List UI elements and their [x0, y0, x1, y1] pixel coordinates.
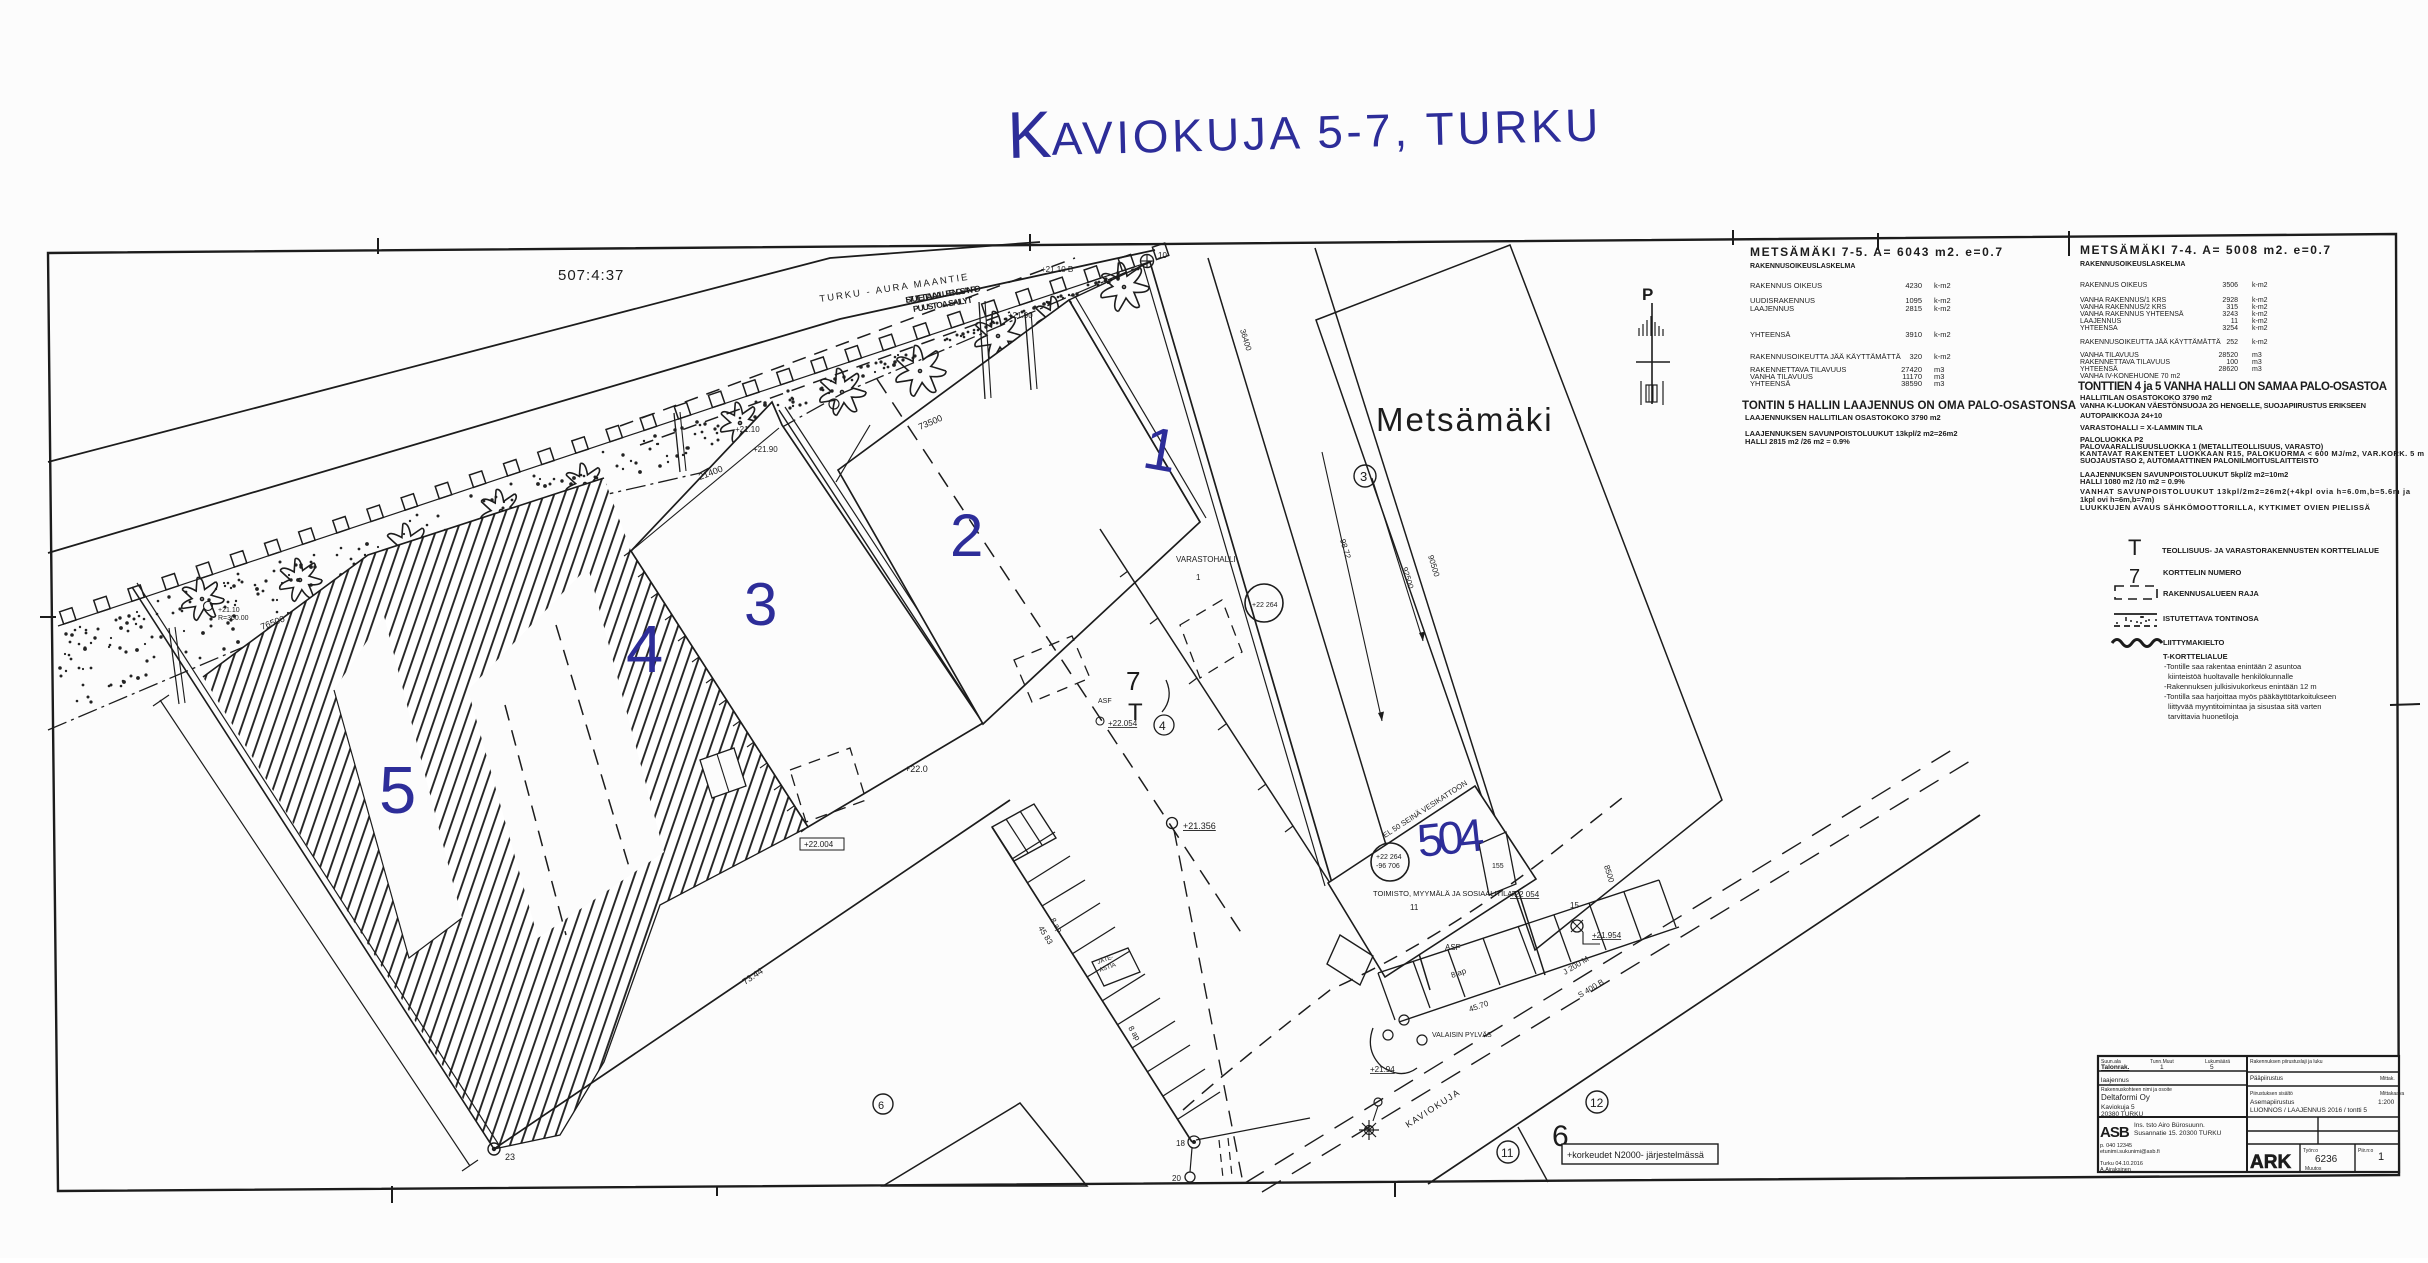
svg-text:m3: m3 [2252, 366, 2262, 373]
svg-text:k-m2: k-m2 [2252, 318, 2268, 325]
svg-text:Muutos: Muutos [2305, 1166, 2322, 1172]
svg-text:LAAJENNUS: LAAJENNUS [1750, 304, 1794, 313]
svg-text:k-m2: k-m2 [2252, 282, 2268, 289]
svg-text:3243: 3243 [2222, 311, 2238, 318]
svg-text:+21.90: +21.90 [753, 445, 778, 454]
svg-text:laajennus: laajennus [2101, 1077, 2130, 1084]
svg-text:+21.356: +21.356 [1183, 821, 1216, 831]
svg-text:5: 5 [379, 753, 416, 828]
svg-text:VARASTOHALLI: VARASTOHALLI [1176, 555, 1236, 564]
svg-text:11: 11 [2231, 318, 2238, 325]
svg-text:HALLI 2815 m2 /26 m2 = 0.9%: HALLI 2815 m2 /26 m2 = 0.9% [1745, 437, 1850, 446]
svg-text:P: P [1642, 285, 1653, 304]
svg-text:12: 12 [1590, 1096, 1604, 1110]
svg-text:tarvittavia huonetiloja: tarvittavia huonetiloja [2168, 712, 2239, 721]
svg-text:k-m2: k-m2 [1934, 330, 1951, 339]
svg-text:LAAJENNUS: LAAJENNUS [2080, 318, 2122, 325]
svg-text:5: 5 [2210, 1064, 2214, 1071]
svg-text:1: 1 [1196, 573, 1201, 582]
svg-text:HALLI 1080 m2 /10 m2 = 0.9%: HALLI 1080 m2 /10 m2 = 0.9% [2080, 477, 2185, 486]
svg-text:RAKENNUSALUEEN RAJA: RAKENNUSALUEEN RAJA [2163, 589, 2259, 598]
svg-text:2815: 2815 [1905, 304, 1922, 313]
svg-text:k-m2: k-m2 [2252, 304, 2268, 311]
svg-text:Susannatie 15. 20300 TURKU: Susannatie 15. 20300 TURKU [2134, 1130, 2222, 1137]
svg-text:1: 1 [2160, 1064, 2164, 1071]
svg-text:LUONNOS / LAAJENNUS 2016 / ton: LUONNOS / LAAJENNUS 2016 / tontti 5 [2250, 1107, 2367, 1114]
svg-text:Mittak.: Mittak. [2380, 1076, 2395, 1082]
svg-text:TONTTIEN 4 ja 5 VANHA HALLI ON: TONTTIEN 4 ja 5 VANHA HALLI ON SAMAA PAL… [2078, 381, 2387, 393]
svg-text:VANHA RAKENNUS/2 KRS: VANHA RAKENNUS/2 KRS [2080, 304, 2167, 311]
svg-text:T-KORTTELIALUE: T-KORTTELIALUE [2163, 652, 2228, 661]
svg-text:SUOJAUSTASO 2, AUTOMAATTINEN P: SUOJAUSTASO 2, AUTOMAATTINEN PALONILMOIT… [2080, 456, 2319, 465]
svg-text:LUUKKUJEN AVAUS SÄHKÖMOOTTORIL: LUUKKUJEN AVAUS SÄHKÖMOOTTORILLA, KYTKIM… [2080, 503, 2371, 512]
svg-text:100: 100 [2226, 359, 2238, 366]
svg-text:LAAJENNUKSEN HALLITILAN OSASTO: LAAJENNUKSEN HALLITILAN OSASTOKOKO 3790 … [1745, 413, 1941, 422]
svg-text:etunimi.sukunimi@asb.fi: etunimi.sukunimi@asb.fi [2100, 1149, 2160, 1155]
svg-text:320: 320 [1909, 352, 1922, 361]
svg-text:1: 1 [2378, 1151, 2384, 1163]
svg-text:Asemapiirustus: Asemapiirustus [2250, 1099, 2295, 1106]
svg-text:28520: 28520 [2219, 352, 2239, 359]
svg-text:k-m2: k-m2 [2252, 339, 2268, 346]
svg-text:3: 3 [744, 571, 777, 638]
svg-text:Metsämäki: Metsämäki [1376, 401, 1554, 438]
svg-text:KORTTELIN NUMERO: KORTTELIN NUMERO [2163, 568, 2241, 577]
svg-text:2928: 2928 [2222, 297, 2238, 304]
svg-text:315: 315 [2226, 304, 2238, 311]
svg-text:+21.10 B: +21.10 B [1041, 265, 1073, 274]
svg-text:+21.10: +21.10 [218, 607, 240, 614]
svg-text:ASB: ASB [2100, 1124, 2130, 1141]
svg-text:RAKENNUSOIKEUTTA JÄÄ KÄYTTÄMÄT: RAKENNUSOIKEUTTA JÄÄ KÄYTTÄMÄTTÄ [1750, 352, 1901, 361]
svg-text:YHTEENSÄ: YHTEENSÄ [1750, 330, 1790, 339]
svg-text:4: 4 [1159, 719, 1166, 733]
svg-text:+21.10: +21.10 [735, 425, 760, 434]
svg-text:Rakennuksen piirustuslaji ja l: Rakennuksen piirustuslaji ja luku [2250, 1059, 2323, 1065]
svg-text:RAKENNUSOIKEUSLASKELMA: RAKENNUSOIKEUSLASKELMA [1750, 263, 1855, 270]
svg-text:m3: m3 [2252, 359, 2262, 366]
svg-text:ISTUTETTAVA TONTINOSA: ISTUTETTAVA TONTINOSA [2163, 614, 2259, 623]
svg-text:RAKENNUSOIKEUSLASKELMA: RAKENNUSOIKEUSLASKELMA [2080, 261, 2185, 268]
svg-text:6236: 6236 [2315, 1154, 2338, 1165]
svg-text:6: 6 [878, 1100, 884, 1112]
svg-text:11: 11 [1410, 903, 1419, 912]
svg-text:+21.954: +21.954 [1592, 931, 1622, 940]
svg-text:Deltaformi Oy: Deltaformi Oy [2101, 1093, 2150, 1102]
svg-text:RAKENNUS OIKEUS: RAKENNUS OIKEUS [1750, 281, 1822, 290]
svg-text:Mittakaava: Mittakaava [2380, 1091, 2404, 1097]
svg-text:LIITTYMAKIELTO: LIITTYMAKIELTO [2163, 638, 2225, 647]
svg-text:4: 4 [626, 612, 663, 687]
svg-text:15: 15 [1570, 901, 1579, 910]
svg-text:3254: 3254 [2222, 325, 2238, 332]
svg-text:504: 504 [1415, 808, 1486, 867]
svg-text:TEOLLISUUS- JA VARASTORAKENNUS: TEOLLISUUS- JA VARASTORAKENNUSTEN KORTTE… [2162, 546, 2379, 555]
svg-text:20: 20 [1172, 1174, 1181, 1183]
svg-text:+22 264: +22 264 [1376, 854, 1402, 861]
svg-text:YHTEENSA: YHTEENSA [2080, 325, 2118, 332]
svg-text:YHTEENSÄ: YHTEENSÄ [2080, 365, 2118, 373]
svg-text:k-m2: k-m2 [2252, 297, 2268, 304]
svg-text:VANHA K-LUOKAN VÄESTÖNSUOJA 2G: VANHA K-LUOKAN VÄESTÖNSUOJA 2G HENGELLE,… [2080, 401, 2366, 410]
svg-text:+22.004: +22.004 [804, 840, 834, 849]
svg-text:VANHA TILAVUUS: VANHA TILAVUUS [2080, 352, 2139, 359]
svg-text:155: 155 [1492, 863, 1504, 870]
svg-text:Talonrak.: Talonrak. [2101, 1064, 2130, 1071]
svg-text:+22 054: +22 054 [1510, 890, 1540, 899]
svg-text:YHTEENSÄ: YHTEENSÄ [1750, 379, 1790, 388]
svg-text:507:4:37: 507:4:37 [558, 267, 624, 284]
svg-text:T: T [2128, 535, 2141, 560]
svg-text:38590: 38590 [1901, 379, 1922, 388]
svg-text:A.Airaksinen: A.Airaksinen [2100, 1167, 2131, 1173]
svg-text:VANHA RAKENNUS YHTEENSÄ: VANHA RAKENNUS YHTEENSÄ [2080, 310, 2184, 318]
svg-text:liittyvää myyntitoimintaa ja s: liittyvää myyntitoimintaa ja sisustaa si… [2168, 702, 2321, 711]
svg-text:Pääpiirustus: Pääpiirustus [2250, 1076, 2283, 1082]
svg-text:k-m2: k-m2 [1934, 304, 1951, 313]
svg-text:TONTIN 5 HALLIN LAAJENNUS ON: TONTIN 5 HALLIN LAAJENNUS ON OMA PALO-OS… [1742, 400, 2076, 412]
svg-text:RAKENNUS OIKEUS: RAKENNUS OIKEUS [2080, 282, 2148, 289]
svg-text:k-m2: k-m2 [2252, 311, 2268, 318]
svg-text:+21.94: +21.94 [1370, 1065, 1395, 1074]
svg-text:Ins. tsto Airo Bürosuunn.: Ins. tsto Airo Bürosuunn. [2134, 1122, 2205, 1129]
svg-text:+22.0: +22.0 [905, 764, 928, 774]
svg-text:TOIMISTO, MYYMÄLÄ JA SOSIAALIT: TOIMISTO, MYYMÄLÄ JA SOSIAALITILAT [1373, 889, 1517, 898]
svg-text:1:200: 1:200 [2378, 1099, 2395, 1106]
svg-text:-Rakennuksen julkisivukorkeus: -Rakennuksen julkisivukorkeus enintään 1… [2164, 682, 2317, 691]
svg-text:23: 23 [505, 1152, 515, 1162]
svg-text:METSÄMÄKI 7-4. A= 5008 m2. e=0: METSÄMÄKI 7-4. A= 5008 m2. e=0.7 [2080, 242, 2330, 257]
svg-text:+korkeudet N2000- järjestelmäs: +korkeudet N2000- järjestelmässä [1567, 1150, 1704, 1160]
svg-text:252: 252 [2226, 339, 2238, 346]
svg-text:20380 TURKU: 20380 TURKU [2101, 1111, 2143, 1118]
svg-text:METSÄMÄKI 7-5. A= 6043 m2. e=0: METSÄMÄKI 7-5. A= 6043 m2. e=0.7 [1750, 244, 2002, 259]
svg-text:kiinteistöä huoltavalle henkil: kiinteistöä huoltavalle henkilökunnalle [2168, 672, 2293, 681]
svg-text:VALAISIN PYLVÄS: VALAISIN PYLVÄS [1432, 1031, 1492, 1039]
svg-text:VARASTOHALLI = X-LAMMIN TILA: VARASTOHALLI = X-LAMMIN TILA [2080, 423, 2203, 432]
svg-text:2: 2 [950, 502, 983, 569]
svg-text:AUTOPAIKKOJA 24+10: AUTOPAIKKOJA 24+10 [2080, 411, 2162, 420]
svg-text:ARK: ARK [2250, 1152, 2291, 1173]
svg-text:ASF: ASF [1098, 698, 1112, 705]
svg-text:3: 3 [1360, 469, 1367, 484]
svg-text:-96 706: -96 706 [1376, 863, 1400, 870]
svg-text:+22.054: +22.054 [1108, 719, 1138, 728]
svg-text:10: 10 [1158, 251, 1167, 260]
svg-text:ASF: ASF [1445, 943, 1461, 952]
svg-text:11: 11 [1501, 1146, 1514, 1160]
svg-text:Lukumäärä: Lukumäärä [2205, 1059, 2230, 1065]
svg-text:3506: 3506 [2222, 282, 2238, 289]
svg-text:VANHA IV-KONEHUONE 70 m2: VANHA IV-KONEHUONE 70 m2 [2080, 373, 2180, 380]
svg-text:K: K [1006, 97, 1052, 172]
svg-text:3910: 3910 [1905, 330, 1922, 339]
svg-text:k-m2: k-m2 [1934, 281, 1951, 290]
svg-text:4230: 4230 [1905, 281, 1922, 290]
svg-text:R=300.00: R=300.00 [218, 615, 249, 622]
svg-text:m3: m3 [2252, 352, 2262, 359]
svg-text:7: 7 [1126, 666, 1140, 696]
svg-text:-Tontille saa rakentaa enintää: -Tontille saa rakentaa enintään 2 asunto… [2164, 662, 2302, 671]
svg-text:Kaviokuja 5: Kaviokuja 5 [2101, 1104, 2135, 1111]
svg-text:+21.90: +21.90 [1008, 311, 1033, 320]
svg-text:+22 264: +22 264 [1252, 602, 1278, 609]
svg-text:RAKENNUSOIKEUTTA JÄÄ KÄYTTÄMÄT: RAKENNUSOIKEUTTA JÄÄ KÄYTTÄMÄTTÄ [2080, 338, 2221, 346]
svg-text:k-m2: k-m2 [2252, 325, 2268, 332]
svg-text:VANHA RAKENNUS/1 KRS: VANHA RAKENNUS/1 KRS [2080, 297, 2167, 304]
svg-text:7: 7 [2129, 566, 2140, 588]
svg-text:Piir.n:o: Piir.n:o [2358, 1148, 2374, 1154]
svg-text:18: 18 [1176, 1139, 1185, 1148]
svg-text:k-m2: k-m2 [1934, 352, 1951, 361]
svg-text:RAKENNETTAVA TILAVUUS: RAKENNETTAVA TILAVUUS [2080, 359, 2170, 366]
svg-text:-Tontilla saa harjoittaa myös: -Tontilla saa harjoittaa myös pääkäyttöt… [2164, 692, 2336, 701]
svg-text:m3: m3 [1934, 379, 1944, 388]
svg-text:28620: 28620 [2219, 366, 2239, 373]
svg-text:Piirustuksen sisältö: Piirustuksen sisältö [2250, 1091, 2293, 1097]
